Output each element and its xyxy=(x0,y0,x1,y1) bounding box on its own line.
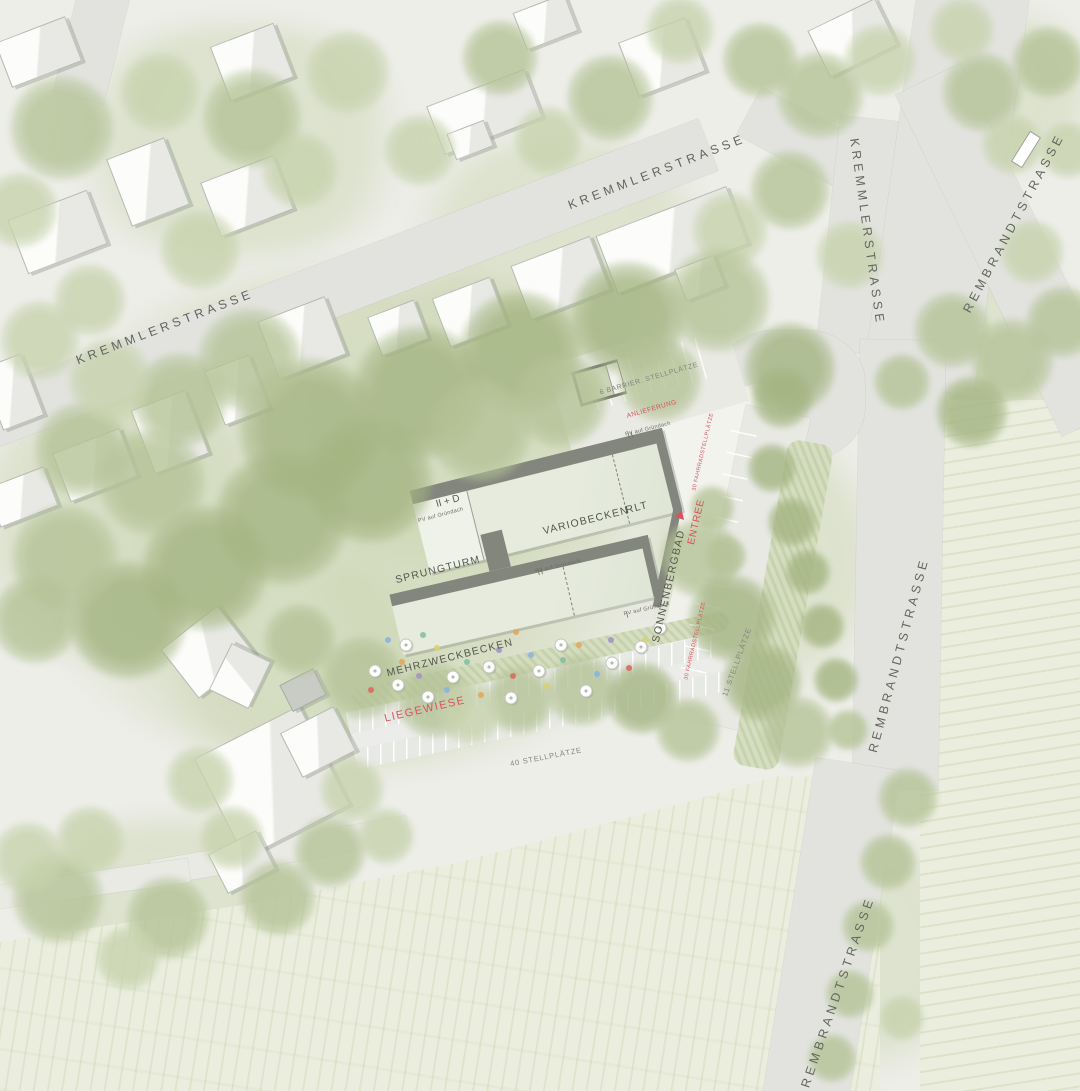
parasol-icon xyxy=(533,665,546,678)
play-equipment-dot xyxy=(368,687,374,693)
play-equipment-dot xyxy=(626,665,632,671)
tree xyxy=(760,694,836,770)
tree xyxy=(746,442,798,494)
play-equipment-dot xyxy=(528,652,534,658)
play-equipment-dot xyxy=(420,632,426,638)
tree xyxy=(876,766,940,830)
label-parking-40: 40 STELLPLÄTZE xyxy=(510,746,583,767)
play-equipment-dot xyxy=(434,645,440,651)
tree xyxy=(826,708,870,752)
tree xyxy=(798,602,846,650)
parasol-icon xyxy=(555,639,568,652)
play-equipment-dot xyxy=(576,642,582,648)
field-east xyxy=(920,400,1080,1091)
tree xyxy=(382,112,458,188)
tree xyxy=(858,832,918,892)
parasol-icon xyxy=(369,665,382,678)
tree xyxy=(512,104,584,176)
tree xyxy=(812,656,860,704)
label-pv-lower-right: PV auf GründachI xyxy=(623,611,630,620)
play-equipment-dot xyxy=(385,637,391,643)
play-equipment-dot xyxy=(560,657,566,663)
site-plan-canvas: KREMMLERSTRASSE KREMMLERSTRASSE KREMMLER… xyxy=(0,0,1080,1091)
tree xyxy=(934,374,1010,450)
tree xyxy=(1010,24,1080,100)
play-equipment-dot xyxy=(608,637,614,643)
tree xyxy=(118,50,202,134)
tree xyxy=(784,548,832,596)
play-equipment-dot xyxy=(416,673,422,679)
parasol-icon xyxy=(635,641,648,654)
tree xyxy=(766,496,818,548)
tree xyxy=(158,208,242,292)
tree xyxy=(878,994,926,1042)
parasol-icon xyxy=(400,639,413,652)
play-equipment-dot xyxy=(594,671,600,677)
tree xyxy=(54,804,126,876)
parasol-icon xyxy=(483,661,496,674)
tree xyxy=(644,0,716,66)
tree xyxy=(356,806,416,866)
tree xyxy=(164,744,236,816)
parasol-icon xyxy=(580,685,593,698)
parasol-icon xyxy=(505,692,518,705)
tree xyxy=(872,352,932,412)
tree xyxy=(460,18,540,98)
tree xyxy=(94,924,162,992)
tree xyxy=(704,534,748,578)
tree xyxy=(7,73,117,183)
play-equipment-dot xyxy=(544,683,550,689)
tree xyxy=(750,366,814,430)
tree xyxy=(0,298,82,382)
play-equipment-dot xyxy=(444,687,450,693)
parasol-icon xyxy=(447,671,460,684)
play-equipment-dot xyxy=(478,692,484,698)
tree xyxy=(842,22,918,98)
dashed-divider xyxy=(563,567,575,616)
tree xyxy=(510,350,610,450)
parasol-icon xyxy=(606,657,619,670)
play-equipment-dot xyxy=(513,629,519,635)
tree xyxy=(654,696,722,764)
tree xyxy=(260,130,340,210)
tree xyxy=(262,602,338,678)
parasol-icon xyxy=(392,679,405,692)
tree xyxy=(304,28,392,116)
play-equipment-dot xyxy=(510,673,516,679)
